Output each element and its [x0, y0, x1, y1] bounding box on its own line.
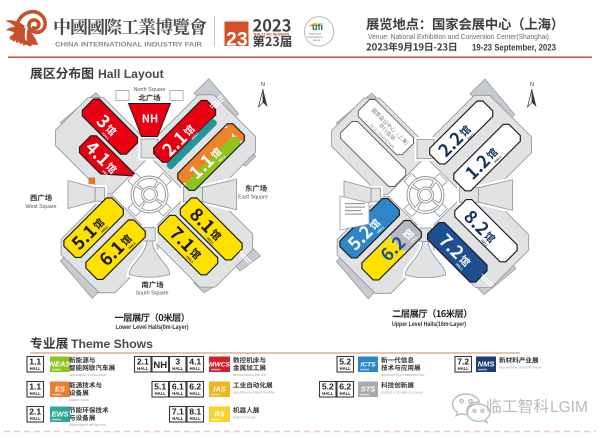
svg-text:THE 23 RD SESSION: THE 23 RD SESSION: [253, 32, 290, 36]
svg-text:HALL: HALL: [340, 391, 352, 396]
svg-text:ES: ES: [55, 384, 65, 393]
svg-text:MWCS: MWCS: [209, 361, 230, 368]
svg-text:HALL: HALL: [190, 416, 202, 421]
svg-text:CHINA INTERNATIONAL INDUSTRY F: CHINA INTERNATIONAL INDUSTRY FAIR: [55, 42, 202, 49]
svg-text:South Square: South Square: [136, 291, 169, 297]
svg-text:N: N: [530, 82, 534, 88]
svg-text:N: N: [261, 82, 265, 88]
svg-text:ENVIRONMENT PROTECTION: ENVIRONMENT PROTECTION: [69, 423, 106, 427]
svg-text:ICTS: ICTS: [360, 361, 376, 368]
svg-text:Upper Level Halls(16m-Layer): Upper Level Halls(16m-Layer): [392, 321, 466, 328]
svg-text:HALL: HALL: [172, 391, 184, 396]
svg-text:19-23 September, 2023: 19-23 September, 2023: [472, 43, 556, 53]
svg-text:North Square: North Square: [133, 87, 165, 93]
svg-text:HALL: HALL: [172, 366, 184, 371]
svg-text:HALL: HALL: [190, 366, 202, 371]
svg-text:LGIM: LGIM: [550, 399, 588, 416]
svg-text:NEW ENERGY & INTELLIGENT: NEW ENERGY & INTELLIGENT: [69, 373, 107, 377]
svg-text:Hall Layout: Hall Layout: [98, 67, 164, 81]
svg-text:IAS: IAS: [213, 384, 226, 393]
svg-text:HALL: HALL: [30, 416, 42, 421]
svg-text:METALWORKING AND CNC: METALWORKING AND CNC: [233, 373, 266, 377]
svg-text:ROBOTICS SHOW: ROBOTICS SHOW: [233, 416, 256, 420]
svg-text:INFORMATION & COMMUNICATION: INFORMATION & COMMUNICATION: [381, 373, 425, 377]
svg-text:HALL: HALL: [322, 391, 334, 396]
svg-text:HALL: HALL: [190, 391, 202, 396]
svg-text:Theme Shows: Theme Shows: [71, 337, 153, 351]
svg-text:ufi: ufi: [312, 22, 323, 32]
svg-text:EWS: EWS: [51, 409, 68, 418]
svg-text:ENERGY SHOW: ENERGY SHOW: [69, 398, 89, 402]
svg-text:HALL: HALL: [172, 416, 184, 421]
svg-text:NH: NH: [153, 360, 167, 371]
svg-text:HALL: HALL: [137, 366, 149, 371]
svg-text:RS: RS: [214, 409, 224, 418]
svg-text:NMS: NMS: [478, 359, 495, 368]
svg-text:INDUSTRIAL AUTOMATION SHOW: INDUSTRIAL AUTOMATION SHOW: [233, 391, 275, 395]
svg-text:Lower Level Halls(0m-Layer): Lower Level Halls(0m-Layer): [116, 324, 189, 331]
svg-text:HALL: HALL: [30, 391, 42, 396]
svg-text:STS: STS: [361, 384, 376, 393]
svg-text:HALL: HALL: [340, 366, 352, 371]
svg-text:HALL: HALL: [458, 366, 470, 371]
svg-text:West Square: West Square: [25, 204, 56, 210]
svg-text:Venue: National Exhibition an: Venue: National Exhibition and Conventio…: [368, 34, 549, 41]
svg-text:NEAS: NEAS: [50, 359, 71, 368]
svg-text:Event: Event: [313, 38, 320, 42]
svg-text:23: 23: [226, 29, 248, 51]
svg-text:NEW MATERIAL INDUSTRY SHOW: NEW MATERIAL INDUSTRY SHOW: [499, 366, 542, 370]
svg-text:HALL: HALL: [155, 391, 167, 396]
svg-text:SCIENCE & TECHNOLOGY SHOW: SCIENCE & TECHNOLOGY SHOW: [381, 391, 423, 395]
svg-text:East Square: East Square: [238, 195, 268, 201]
svg-text:HALL: HALL: [30, 366, 42, 371]
